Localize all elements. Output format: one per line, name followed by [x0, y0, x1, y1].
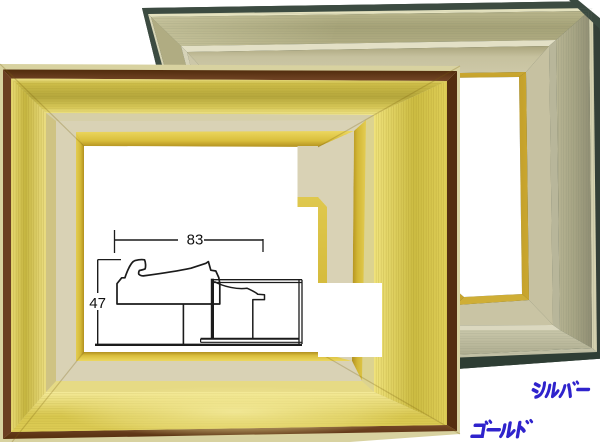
- svg-text:47: 47: [89, 295, 106, 312]
- svg-text:83: 83: [187, 232, 204, 249]
